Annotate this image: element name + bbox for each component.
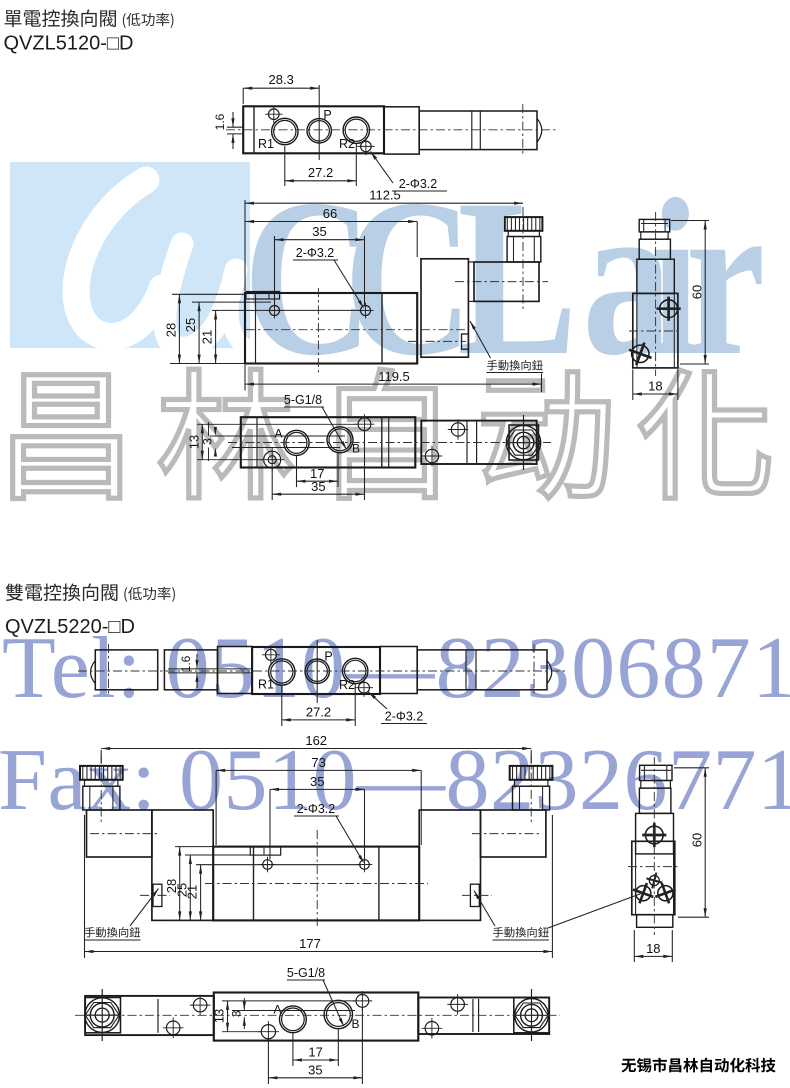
svg-text:35: 35	[308, 1063, 322, 1078]
svg-text:21: 21	[185, 885, 200, 899]
svg-text:5-G1/8: 5-G1/8	[287, 966, 325, 980]
svg-text:35: 35	[310, 774, 324, 789]
svg-text:1.6: 1.6	[213, 113, 227, 130]
svg-text:R1: R1	[258, 678, 274, 692]
svg-text:A: A	[274, 427, 282, 441]
svg-text:QVZL5220-□D: QVZL5220-□D	[5, 616, 135, 638]
svg-text:35: 35	[312, 224, 326, 239]
svg-text:2-Φ3.2: 2-Φ3.2	[399, 177, 438, 191]
svg-text:QVZL5120-□D: QVZL5120-□D	[4, 33, 134, 55]
svg-text:1.6: 1.6	[179, 655, 193, 672]
svg-text:112.5: 112.5	[369, 188, 401, 203]
svg-text:B: B	[352, 442, 360, 456]
svg-text:162: 162	[305, 733, 327, 748]
svg-text:35: 35	[311, 479, 325, 494]
svg-text:P: P	[324, 650, 332, 664]
svg-text:60: 60	[689, 833, 704, 847]
svg-text:3: 3	[229, 1010, 243, 1017]
svg-text:P: P	[323, 108, 331, 122]
svg-text:5-G1/8: 5-G1/8	[284, 393, 322, 407]
svg-text:R2: R2	[339, 137, 355, 151]
svg-text:2-Φ3.2: 2-Φ3.2	[296, 246, 335, 260]
svg-text:60: 60	[689, 285, 704, 299]
svg-text:27.2: 27.2	[306, 705, 331, 720]
svg-text:13: 13	[186, 435, 201, 449]
svg-text:18: 18	[648, 379, 662, 394]
svg-text:3: 3	[201, 438, 215, 445]
svg-text:17: 17	[308, 1045, 322, 1060]
svg-text:2-Φ3.2: 2-Φ3.2	[297, 802, 336, 816]
svg-text:119.5: 119.5	[378, 369, 410, 384]
svg-text:B: B	[351, 1017, 359, 1031]
svg-text:27.2: 27.2	[308, 165, 333, 180]
svg-text:28: 28	[164, 323, 179, 337]
svg-text:R1: R1	[258, 137, 274, 151]
svg-text:A: A	[273, 1003, 281, 1017]
svg-text:66: 66	[323, 206, 337, 221]
svg-text:25: 25	[183, 318, 198, 332]
svg-text:13: 13	[212, 1009, 227, 1023]
svg-text:28.3: 28.3	[269, 72, 294, 87]
svg-text:R2: R2	[339, 678, 355, 692]
svg-text:21: 21	[200, 330, 215, 344]
svg-text:18: 18	[646, 941, 660, 956]
svg-text:73: 73	[311, 755, 325, 770]
svg-text:177: 177	[299, 936, 321, 951]
svg-text:2-Φ3.2: 2-Φ3.2	[385, 710, 424, 724]
